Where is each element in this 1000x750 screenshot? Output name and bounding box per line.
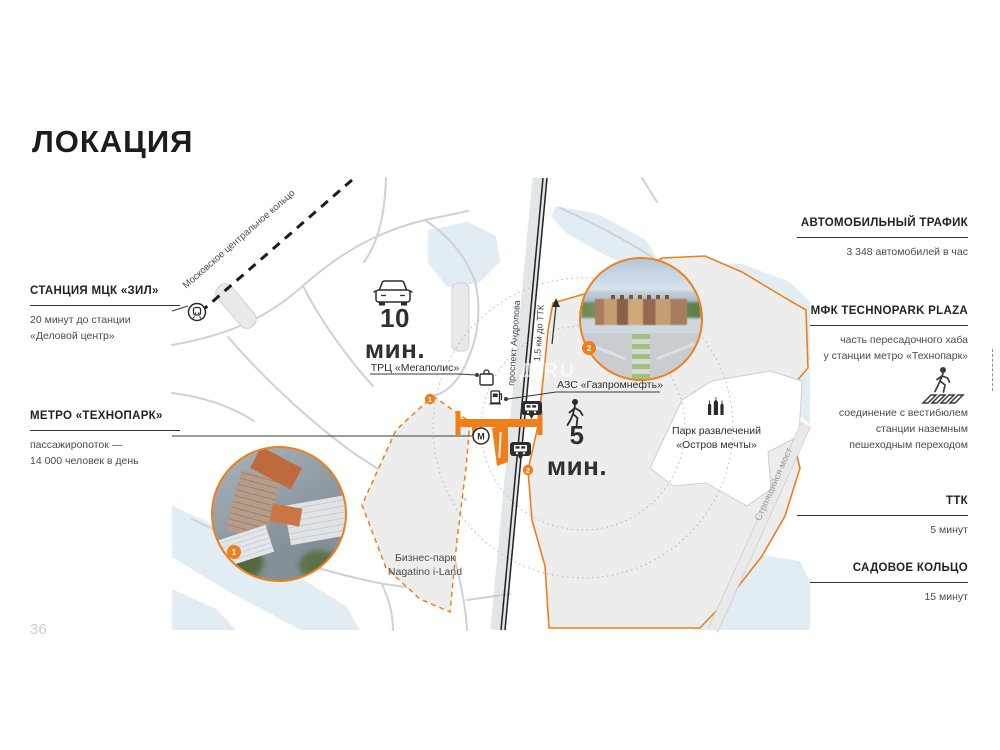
- mall-icon: [480, 370, 493, 385]
- photo-castle: [595, 299, 687, 325]
- photo-central-path: [632, 333, 650, 379]
- dream-island-aerial-photo: [579, 257, 703, 381]
- gas-station-icon: [490, 391, 502, 404]
- photo-marker-2: 2: [582, 341, 596, 355]
- train-station-icon: [189, 304, 206, 321]
- marker-number: 1: [232, 547, 237, 557]
- park-label-line2: «Остров мечты»: [654, 438, 779, 452]
- car-icon: [374, 281, 413, 306]
- svg-text:2: 2: [526, 468, 530, 475]
- residence-aerial-photo: [211, 446, 347, 582]
- business-park-line2: Nagatino i-Land: [365, 565, 485, 579]
- business-park-line1: Бизнес-парк: [365, 551, 485, 565]
- svg-text:М: М: [477, 432, 485, 442]
- mall-pointer-dot: [475, 373, 479, 377]
- park-label: Парк развлечений «Остров мечты»: [654, 424, 779, 452]
- business-park-label: Бизнес-парк Nagatino i-Land: [365, 551, 485, 579]
- technopark-plaza-building: [492, 424, 508, 466]
- photo-marker-1: 1: [227, 545, 241, 559]
- gas-station-label: АЗС «Газпромнефть»: [556, 378, 664, 392]
- marker-number: 2: [587, 343, 592, 353]
- map-marker-2: 2: [523, 465, 533, 475]
- drive-time-label: 10 мин.: [350, 303, 440, 365]
- park-label-line1: Парк развлечений: [654, 424, 779, 438]
- walk-time-label: 5 мин.: [536, 420, 618, 482]
- photo-trees: [299, 550, 339, 580]
- map-marker-1: 1: [425, 394, 435, 404]
- mall-label: ТРЦ «Мегаполис»: [368, 361, 462, 375]
- location-map: М: [0, 0, 1000, 750]
- metro-icon: М: [473, 428, 489, 444]
- svg-text:1: 1: [428, 397, 432, 404]
